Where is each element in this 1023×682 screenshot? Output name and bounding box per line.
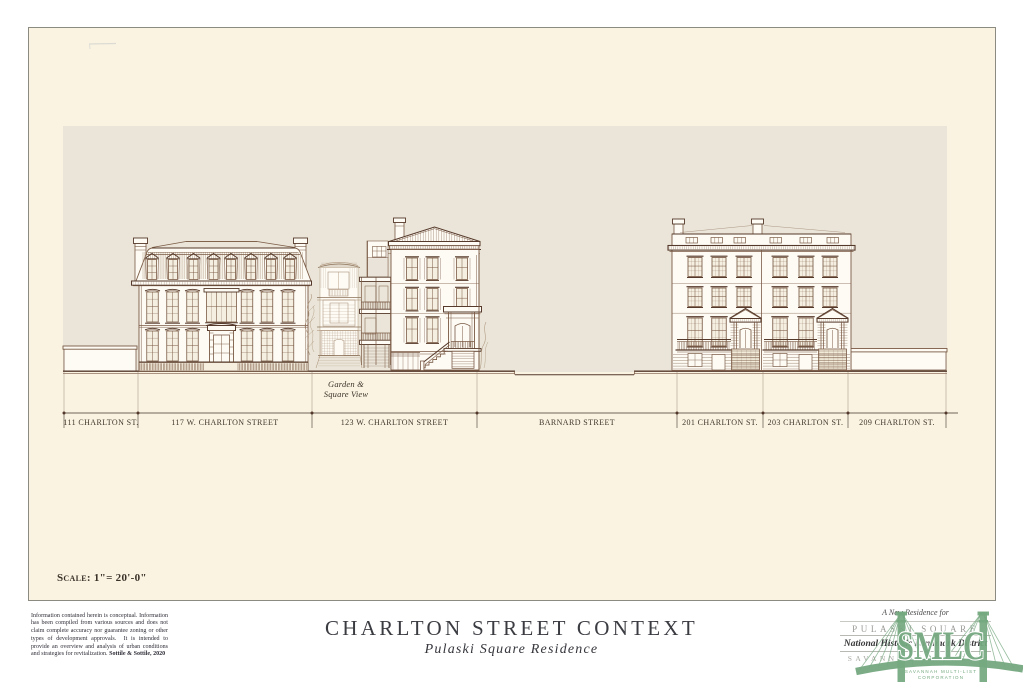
- svg-text:CORPORATION: CORPORATION: [918, 675, 964, 680]
- svg-text:SMLC: SMLC: [897, 623, 985, 668]
- svg-text:SAVANNAH MULTI-LIST: SAVANNAH MULTI-LIST: [905, 669, 977, 674]
